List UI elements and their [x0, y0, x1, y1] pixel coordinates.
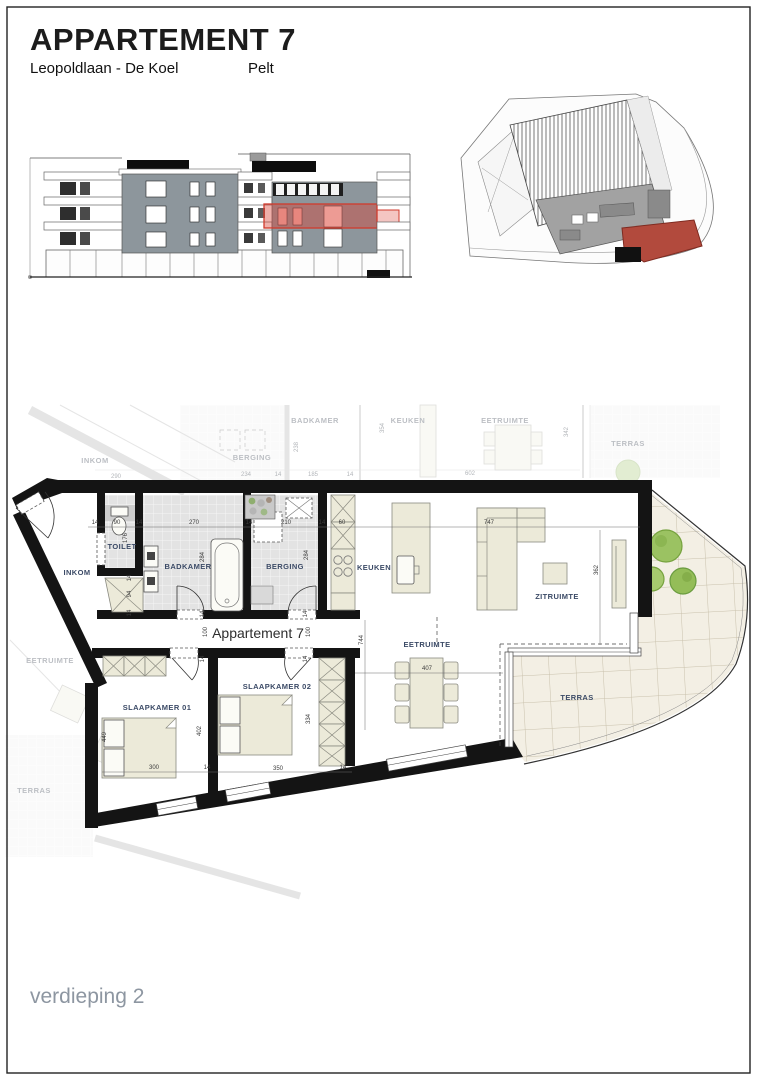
dimension-label: 350 [273, 766, 284, 772]
terrace-floor [512, 493, 747, 762]
site-plan [461, 94, 713, 263]
background-room-label: EETRUIMTE [26, 656, 74, 665]
apartment-name-label: Appartement 7 [212, 625, 304, 641]
storage-door-opening [288, 610, 316, 619]
wall-wardrobe-east [345, 658, 355, 766]
background-room-label: TERRAS [17, 786, 51, 795]
dimension-label: 449 [102, 731, 108, 742]
dimension-label: 60 [339, 520, 346, 526]
background-dimension-label: 185 [308, 472, 319, 478]
slaapkamer-02-label: SLAAPKAMER 02 [243, 682, 312, 691]
tv-cabinet [612, 540, 626, 608]
background-room-label: BADKAMER [291, 416, 339, 425]
dimension-label: 14 [127, 609, 133, 616]
entry-closet [105, 578, 143, 612]
inkom-label: INKOM [64, 568, 91, 577]
page-title: APPARTEMENT 7 [30, 24, 296, 57]
background-dimension-label: 238 [294, 441, 300, 452]
dimension-label: 362 [594, 564, 600, 575]
keuken-label: KEUKEN [357, 563, 391, 572]
background-room-label: INKOM [81, 456, 109, 465]
toilet-door-opening [97, 533, 105, 565]
plan-sheet: APPARTEMENT 7 Leopoldlaan - De Koel Pelt… [0, 0, 757, 1080]
dimension-label: 94 [127, 590, 133, 597]
cooktop-counter [331, 549, 355, 593]
zitruimte-label: ZITRUIMTE [535, 592, 579, 601]
toilet-label: TOILET [108, 542, 137, 551]
wall-toilet-bathroom [135, 493, 143, 576]
dimension-label: 334 [306, 713, 312, 724]
slaapkamer-01-label: SLAAPKAMER 01 [123, 703, 192, 712]
dimension-label: 210 [281, 520, 292, 526]
dimension-label: 284 [304, 549, 310, 560]
project-city: Pelt [248, 60, 274, 77]
background-dimension-label: 602 [465, 471, 476, 477]
background-dimension-label: 14 [275, 472, 282, 478]
dimension-label: 284 [200, 551, 206, 562]
tree-icon [650, 530, 682, 562]
site-black-block [615, 247, 641, 262]
background-dimension-label: 354 [380, 422, 386, 433]
dimension-label: 14 [340, 765, 347, 771]
project-address: Leopoldlaan - De Koel [30, 60, 248, 77]
elevation-ground-floor [46, 250, 403, 277]
floor-level-label: verdieping 2 [30, 985, 144, 1009]
dimension-label: 402 [197, 725, 203, 736]
subtitle-row: Leopoldlaan - De Koel Pelt [30, 60, 296, 77]
dimension-label: 747 [484, 520, 495, 526]
wall-bedroom-divider [208, 658, 218, 800]
bedroom1-door-swing [192, 658, 198, 680]
bedroom2-door-swing [285, 658, 291, 680]
bed-1 [102, 718, 176, 778]
side-table [543, 563, 567, 584]
dimension-label: 14 [127, 574, 133, 581]
dimension-label: 14 [200, 655, 206, 662]
dimension-label: 270 [189, 520, 200, 526]
exterior-wall-east [638, 480, 652, 617]
dimension-label: 14 [303, 610, 309, 617]
badkamer-label: BADKAMER [165, 562, 212, 571]
wardrobe-bedroom2 [319, 658, 345, 766]
bed-2 [218, 695, 292, 755]
tree-icon [670, 568, 696, 594]
dimension-label: 14 [200, 610, 206, 617]
dimension-label: 14 [204, 765, 211, 771]
eetruimte-label: EETRUIMTE [404, 640, 451, 649]
background-dimension-label: 14 [347, 472, 354, 478]
background-dimension-label: 342 [564, 426, 570, 437]
kitchen-units [331, 495, 355, 610]
dimension-label: 14 [246, 520, 253, 526]
background-room-label: TERRAS [611, 439, 645, 448]
background-room-label: EETRUIMTE [481, 416, 529, 425]
wall-storage-east [318, 493, 327, 617]
dimension-label: 100 [306, 626, 312, 637]
background-room-label: BERGING [233, 453, 272, 462]
dimension-label: 14 [303, 655, 309, 662]
exterior-wall-west [85, 683, 98, 828]
wardrobe-bedroom1 [103, 656, 166, 676]
dimension-label: 14 [136, 520, 143, 526]
window-living-east [630, 613, 638, 653]
dimension-label: 14 [92, 520, 99, 526]
background-room-label: KEUKEN [391, 416, 426, 425]
dimension-label: 90 [114, 520, 121, 526]
kitchen-island [392, 503, 430, 593]
dimension-label: 14 [319, 520, 326, 526]
elevation-left-wing [44, 172, 124, 245]
background-dimension-label: 234 [241, 472, 252, 478]
apartment-highlight-elevation [264, 204, 377, 228]
terras-label: TERRAS [560, 693, 593, 702]
dimension-label: 300 [149, 765, 160, 771]
berging-label: BERGING [266, 562, 304, 571]
elevation-drawing [28, 153, 412, 279]
bathtub [211, 539, 243, 611]
bedroom1-door-opening [170, 648, 198, 658]
dimension-label: 176 [123, 532, 129, 543]
exterior-wall-north [58, 480, 652, 493]
background-dimension-label: 290 [111, 474, 122, 480]
title-block: APPARTEMENT 7 Leopoldlaan - De Koel Pelt [30, 24, 296, 77]
wall-toilet-south [97, 568, 143, 576]
dimension-label: 744 [359, 634, 365, 645]
dimension-label: 407 [422, 666, 433, 672]
island-sink [397, 556, 414, 584]
dimension-label: 100 [203, 626, 209, 637]
elevation-block-a [119, 160, 241, 253]
drawing-canvas: INKOMBERGINGBADKAMERKEUKENEETRUIMTETERRA… [0, 0, 757, 1080]
utility-shaft [245, 495, 275, 519]
entry-door-swing [45, 492, 54, 538]
